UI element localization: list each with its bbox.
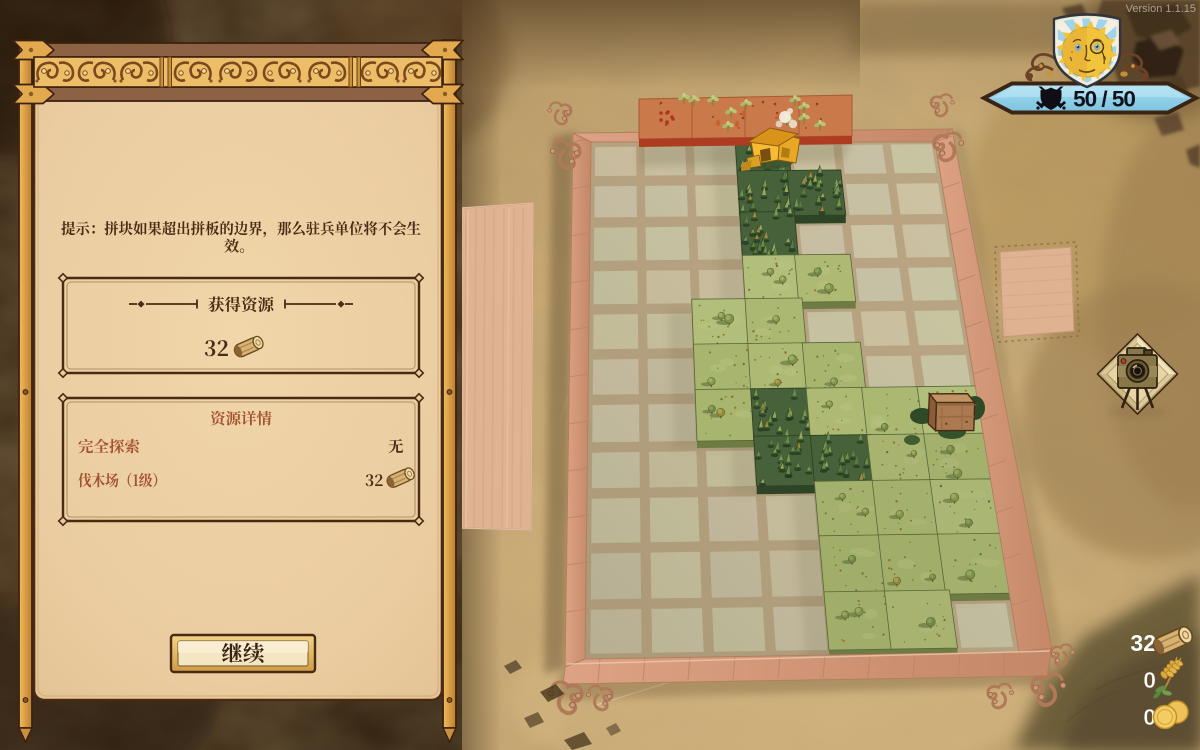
svg-text:50 / 50: 50 / 50 (1073, 87, 1135, 112)
svg-text:Version 1.1.15: Version 1.1.15 (1126, 3, 1196, 15)
svg-text:32: 32 (1130, 630, 1156, 656)
svg-text:0: 0 (1143, 667, 1156, 693)
